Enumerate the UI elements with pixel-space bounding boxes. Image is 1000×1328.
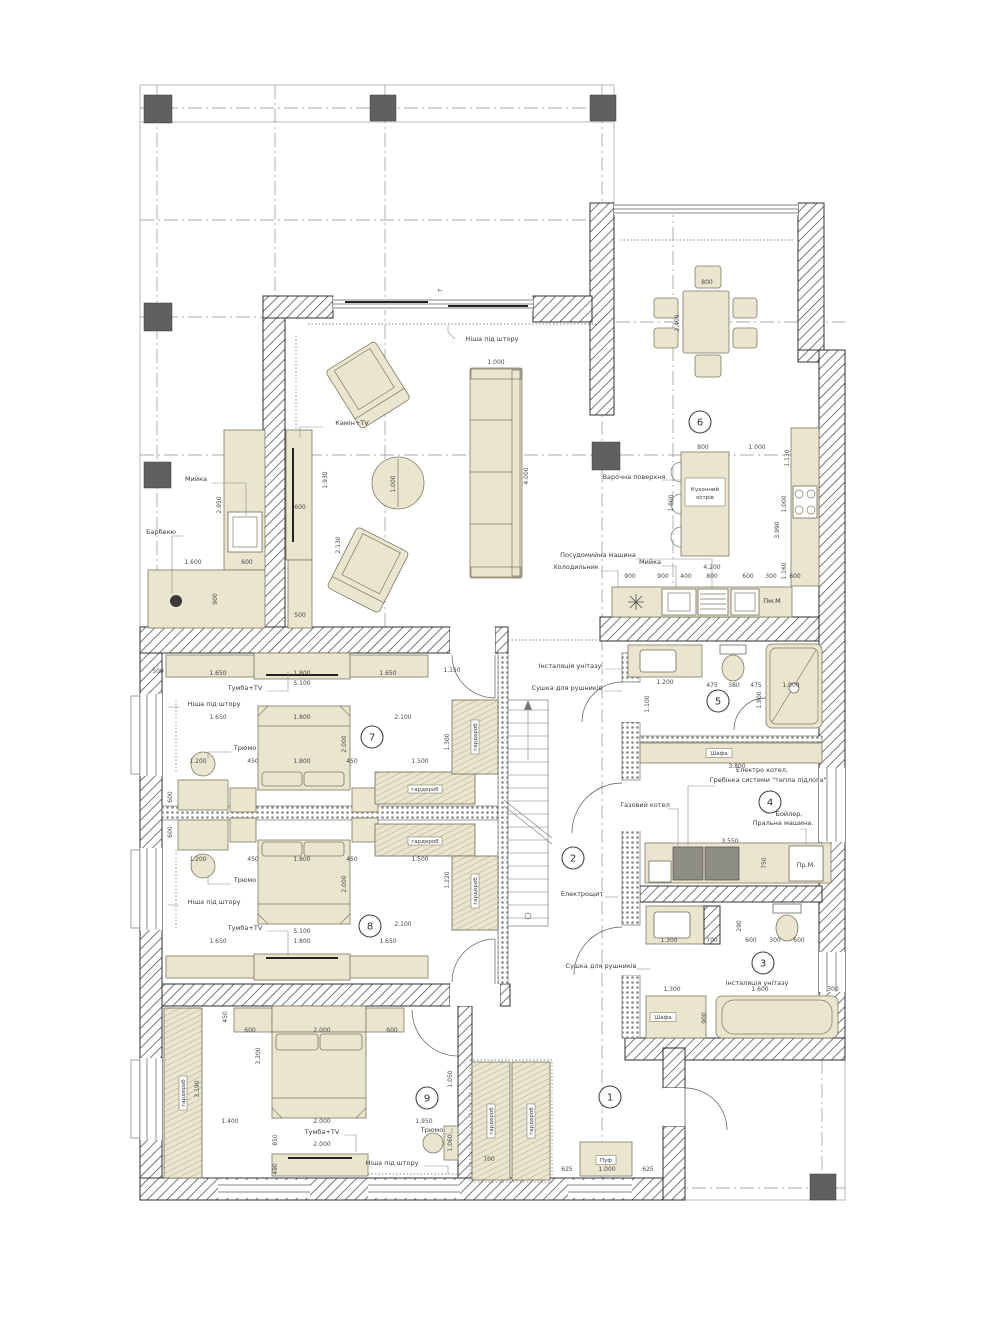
- boxed-label-text: Шафа: [654, 1015, 671, 1021]
- dimension-label: 850: [272, 1134, 279, 1146]
- room-number-text: 1: [607, 1093, 613, 1104]
- dimension-label: 380: [728, 682, 740, 689]
- dimension-label: 800: [706, 573, 718, 580]
- dimension-label: 2.100: [394, 714, 411, 721]
- dimension-label: 3.190: [194, 1080, 201, 1097]
- dimension-label: 600: [745, 937, 757, 944]
- dimension-label: 1.000: [781, 495, 788, 512]
- boxed-label: Шафа: [650, 1013, 676, 1022]
- room-number-9: 9: [416, 1087, 438, 1109]
- dimension-label: 2.130: [335, 536, 342, 553]
- label-leader: [800, 829, 806, 845]
- label-leader: [668, 809, 678, 846]
- dimension-label: 900: [212, 593, 219, 605]
- dimension-label: 800: [701, 279, 713, 286]
- dimension-label: 2.000: [341, 735, 348, 752]
- dimension-label: 600: [167, 826, 174, 838]
- dimension-label: 475: [750, 682, 762, 689]
- dimension-label: 1.600: [184, 559, 201, 566]
- furniture-label: Тумба+TV: [227, 684, 263, 692]
- boxed-label-text: гардероб: [489, 1107, 495, 1135]
- furniture-label: Пр.М.: [797, 861, 816, 869]
- furniture-label: Бойлер,: [775, 810, 802, 818]
- dimension-label: 1.200: [656, 679, 673, 686]
- dimension-label: ←: [437, 287, 442, 294]
- furniture-label: Трюмо: [233, 876, 256, 884]
- room-number-4: 4: [759, 791, 781, 813]
- furniture-label: Камін+TV: [335, 419, 369, 427]
- boxed-label: Шафа: [706, 749, 732, 758]
- dimension-label: 500: [294, 612, 306, 619]
- dimension-label: 1.800: [293, 714, 310, 721]
- dimension-label: 450: [247, 856, 259, 863]
- room-number-text: 4: [767, 798, 773, 809]
- dimension-label: 3.800: [728, 763, 745, 770]
- dimension-label: 3.200: [255, 1047, 262, 1064]
- boxed-label: гардероб: [179, 1076, 187, 1110]
- boxed-label-text: гардероб: [411, 787, 439, 793]
- furniture-label: Мийка: [639, 558, 661, 566]
- dimension-label: 400: [680, 573, 692, 580]
- dimension-label: 600: [294, 504, 306, 511]
- room-number-2: 2: [562, 847, 584, 869]
- dimension-label: 1.650: [379, 938, 396, 945]
- room-number-1: 1: [599, 1086, 621, 1108]
- boxed-label-text: острів: [696, 495, 714, 501]
- dimension-label: 625: [561, 1166, 573, 1173]
- dimension-label: 1.800: [668, 494, 675, 511]
- furniture-label: Ніша під штору: [366, 1159, 419, 1167]
- label-leader: [601, 571, 618, 588]
- label-leader: [448, 325, 455, 339]
- label-leader: [267, 931, 288, 956]
- kitchen-wall-counter: [791, 428, 819, 586]
- dimension-label: 475: [706, 682, 718, 689]
- dimension-label: 290: [736, 920, 743, 932]
- dimension-label: 800: [697, 444, 709, 451]
- dimension-label: 5.100: [293, 680, 310, 687]
- dimension-label: 700: [483, 1156, 495, 1163]
- dimension-label: 450: [247, 758, 259, 765]
- boxed-label-text: гардероб: [411, 839, 439, 845]
- furniture-label: Мийка: [185, 475, 207, 483]
- dimension-label: 750: [761, 857, 768, 869]
- boxed-label-text: гардероб: [529, 1107, 535, 1135]
- dimension-label: 300: [827, 986, 839, 993]
- furniture-label: Ніша під штору: [188, 898, 241, 906]
- dimension-label: 2.000: [313, 1118, 330, 1125]
- dimension-label: 2.000: [313, 1027, 330, 1034]
- boxed-label-text: Кухонний: [691, 486, 720, 493]
- dimension-label: 1.000: [390, 475, 397, 492]
- dimension-label: 450: [222, 1011, 229, 1023]
- dimension-label: 1.500: [411, 758, 428, 765]
- dimension-label: 1.600: [751, 986, 768, 993]
- label-leader: [344, 1135, 356, 1152]
- furniture-label: Сушка для рушників: [532, 684, 603, 692]
- dimension-label: 4.200: [703, 564, 720, 571]
- dimension-label: 490: [272, 1163, 279, 1175]
- dimension-label: 1.800: [293, 856, 310, 863]
- dimension-label: 1.400: [221, 1118, 238, 1125]
- furniture-label: Трюмо: [420, 1126, 443, 1134]
- boxed-label-text: Пуф: [600, 1158, 612, 1164]
- boxed-label: гардероб: [527, 1104, 535, 1138]
- furniture-label: Ніша під штору: [466, 335, 519, 343]
- boxed-label: Пуф: [596, 1156, 616, 1165]
- dimension-label: 1.500: [411, 856, 428, 863]
- fireplace-tv-unit: [286, 430, 312, 628]
- dimension-label: 4.000: [523, 467, 530, 484]
- dimension-label: 1.150: [443, 667, 460, 674]
- furniture-label: Пм.М: [763, 597, 780, 605]
- boxed-label: гардероб: [487, 1104, 495, 1138]
- room-number-text: 2: [570, 854, 576, 865]
- boxed-label: Кухоннийострів: [685, 478, 725, 506]
- boxed-label-text: гардероб: [473, 723, 479, 751]
- dimension-label: 1.300: [444, 733, 451, 750]
- boxed-label-text: гардероб: [473, 877, 479, 905]
- dimension-label: 450: [346, 856, 358, 863]
- sofa: [470, 368, 522, 578]
- room-number-text: 6: [697, 418, 703, 429]
- dimension-label: 1.650: [209, 714, 226, 721]
- dimension-label: 600: [742, 573, 754, 580]
- furniture-label: Електрощит: [561, 890, 603, 898]
- dimension-label: 1.000: [748, 444, 765, 451]
- dimension-label: 1.000: [598, 1166, 615, 1173]
- room-number-6: 6: [689, 411, 711, 433]
- dimension-label: 1.050: [447, 1070, 454, 1087]
- boxed-label: гардероб: [408, 785, 442, 793]
- armchair: [325, 341, 410, 429]
- room-number-5: 5: [707, 690, 729, 712]
- label-leader: [688, 786, 716, 846]
- staircase: [504, 700, 552, 926]
- dimension-label: 3.550: [721, 838, 738, 845]
- dimension-label: 300: [769, 937, 781, 944]
- dimension-label: 1.200: [189, 758, 206, 765]
- boxed-label-text: Шафа: [710, 751, 727, 757]
- dimension-label: 1.000: [782, 682, 799, 689]
- dimension-label: 1.300: [663, 986, 680, 993]
- dimension-label: 2.950: [216, 496, 223, 513]
- dimension-label: 1.650: [209, 670, 226, 677]
- dimension-label: 1.650: [379, 670, 396, 677]
- dimension-label: 600: [244, 1027, 256, 1034]
- room-number-7: 7: [361, 726, 383, 748]
- dimension-label: 1.800: [293, 670, 310, 677]
- dimension-label: 1.900: [756, 691, 763, 708]
- bbq-sink: [170, 595, 182, 607]
- room-number-text: 3: [760, 959, 766, 970]
- dimension-label: 2.000: [341, 875, 348, 892]
- dimension-label: 600: [241, 559, 253, 566]
- dimension-label: 1.950: [415, 1118, 432, 1125]
- dimension-label: 1.650: [209, 938, 226, 945]
- room-number-text: 7: [369, 733, 375, 744]
- boxed-label: гардероб: [408, 837, 442, 845]
- room-number-8: 8: [359, 915, 381, 937]
- boxed-label: гардероб: [471, 874, 479, 908]
- furniture-label: Сушка для рушників: [566, 962, 637, 970]
- dimension-label: 1.400: [674, 314, 681, 331]
- bedroom9-furniture: [164, 1006, 458, 1178]
- furniture-label: Тумба+TV: [304, 1128, 340, 1136]
- dimension-label: 1.200: [189, 856, 206, 863]
- dimension-label: 450: [346, 758, 358, 765]
- dimension-label: 1.060: [447, 1134, 454, 1151]
- furniture-label: Холодильник: [553, 563, 599, 571]
- floor-plan: Ніша під шторуКамін+TVМийкаБарбекюВарочн…: [0, 0, 1000, 1328]
- dimension-label: 700: [706, 937, 718, 944]
- furniture-label: Тумба+TV: [227, 924, 263, 932]
- room-number-text: 8: [367, 922, 373, 933]
- dimension-label: 300: [765, 573, 777, 580]
- dimension-label: 2.000: [313, 1141, 330, 1148]
- dimension-label: 625: [642, 1166, 654, 1173]
- dimension-label: 600: [789, 573, 801, 580]
- furniture-label: Трюмо: [233, 744, 256, 752]
- dimension-label: 900: [624, 573, 636, 580]
- dimension-label: 900: [657, 573, 669, 580]
- coffee-table: [372, 457, 424, 509]
- furniture-label: Барбекю: [146, 528, 177, 536]
- dimension-label: 1.800: [293, 938, 310, 945]
- dimension-label: 3.990: [774, 521, 781, 538]
- dimension-label: 1.000: [487, 359, 504, 366]
- dimension-label: 1.160: [781, 562, 788, 579]
- dimension-label: 1.220: [444, 871, 451, 888]
- dimension-label: 600: [793, 937, 805, 944]
- dimension-label: 5.100: [293, 928, 310, 935]
- dimension-label: 500: [152, 668, 164, 675]
- dimension-label: 1.800: [293, 758, 310, 765]
- furniture-label: Пральна машина.: [753, 819, 814, 827]
- boxed-label-text: гардероб: [181, 1079, 187, 1107]
- furniture-label: Ніша під штору: [188, 700, 241, 708]
- furniture-label: Газовий котел: [620, 801, 670, 809]
- floor-plan-page: Ніша під шторуКамін+TVМийкаБарбекюВарочн…: [0, 0, 1000, 1328]
- label-leader: [208, 876, 231, 884]
- dimension-label: 1.100: [644, 695, 651, 712]
- furniture-label: Варочна поверхня: [603, 473, 666, 481]
- sink-symbol: [628, 594, 644, 610]
- room-number-3: 3: [752, 952, 774, 974]
- dimension-label: 600: [167, 791, 174, 803]
- dimension-label: 2.100: [394, 921, 411, 928]
- room-number-text: 5: [715, 697, 721, 708]
- furniture-label: Посудомийна машина: [560, 551, 636, 559]
- dimension-label: 1.300: [660, 937, 677, 944]
- dimension-label: 1.130: [784, 449, 791, 466]
- boxed-label: гардероб: [471, 720, 479, 754]
- dimension-label: 900: [701, 1012, 708, 1024]
- furniture-label: Гребінка системи "тепла підлога": [710, 776, 827, 784]
- dimension-label: 600: [386, 1027, 398, 1034]
- dimension-label: 1.930: [322, 471, 329, 488]
- room-number-text: 9: [424, 1094, 430, 1105]
- label-leader: [424, 1166, 448, 1174]
- furniture-label: Інсталяція унітазу: [539, 662, 602, 670]
